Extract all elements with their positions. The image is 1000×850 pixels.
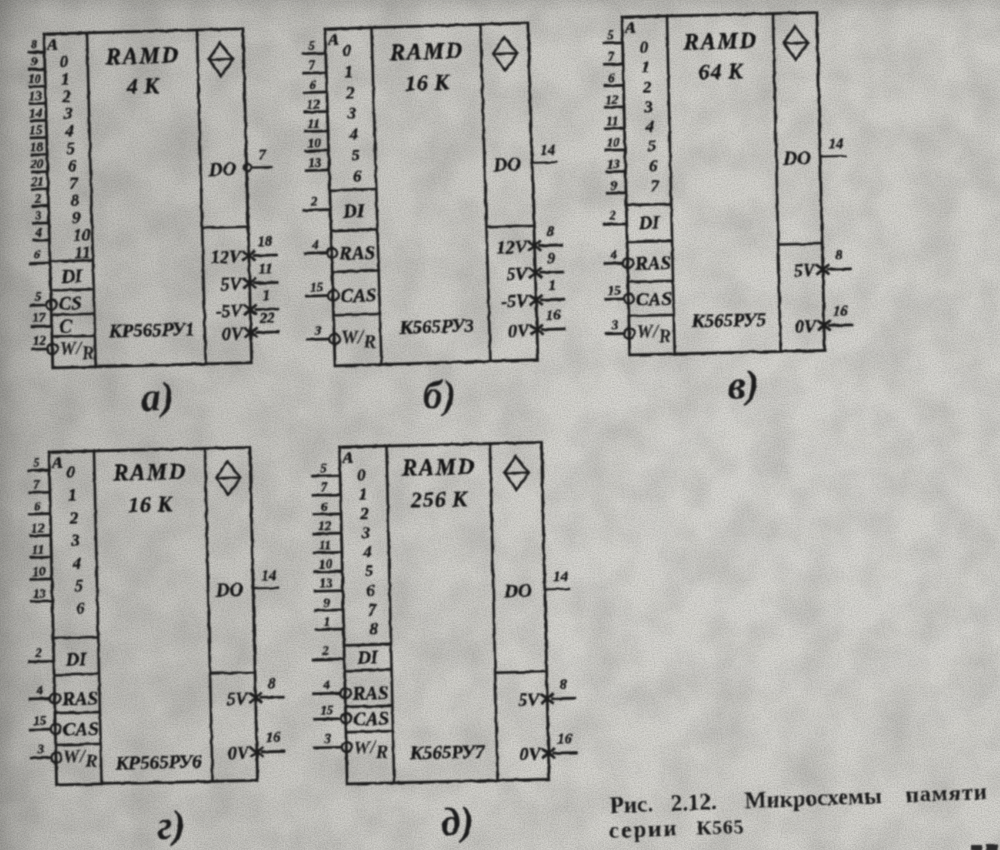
svg-text:10: 10 bbox=[606, 134, 620, 149]
svg-text:г): г) bbox=[156, 801, 186, 847]
svg-text:2: 2 bbox=[321, 643, 329, 658]
svg-text:DI: DI bbox=[60, 266, 83, 288]
svg-text:12V: 12V bbox=[211, 246, 244, 267]
svg-text:10: 10 bbox=[32, 564, 46, 579]
svg-text:9: 9 bbox=[610, 178, 617, 193]
svg-text:13: 13 bbox=[33, 585, 47, 600]
svg-text:5: 5 bbox=[351, 146, 361, 165]
svg-text:К565РУ3: К565РУ3 bbox=[398, 316, 474, 339]
svg-text:0V: 0V bbox=[228, 743, 251, 764]
svg-text:CAS: CAS bbox=[63, 719, 99, 741]
svg-text:12: 12 bbox=[318, 518, 332, 533]
svg-text:6: 6 bbox=[68, 156, 77, 175]
svg-text:RAMD: RAMD bbox=[401, 454, 476, 481]
svg-text:15: 15 bbox=[608, 282, 622, 297]
svg-text:Микросхемы: Микросхемы bbox=[744, 783, 882, 813]
svg-text:0: 0 bbox=[342, 41, 352, 60]
svg-text:4: 4 bbox=[72, 554, 82, 573]
svg-text:14: 14 bbox=[261, 568, 277, 584]
svg-text:6: 6 bbox=[309, 77, 316, 92]
svg-text:4: 4 bbox=[311, 237, 319, 252]
svg-text:12V: 12V bbox=[496, 236, 529, 257]
svg-text:1: 1 bbox=[68, 486, 77, 505]
svg-text:9: 9 bbox=[72, 208, 81, 227]
svg-text:0V: 0V bbox=[519, 744, 542, 765]
svg-text:2: 2 bbox=[33, 191, 41, 206]
svg-text:1: 1 bbox=[548, 278, 556, 294]
svg-text:КР565РУ1: КР565РУ1 bbox=[108, 319, 196, 342]
svg-text:5: 5 bbox=[647, 136, 656, 155]
svg-text:6: 6 bbox=[34, 247, 41, 262]
svg-text:DO: DO bbox=[215, 580, 244, 602]
svg-text:5: 5 bbox=[74, 576, 83, 595]
svg-text:3: 3 bbox=[70, 531, 80, 550]
svg-text:4: 4 bbox=[64, 121, 74, 140]
svg-text:64 К: 64 К bbox=[698, 58, 744, 84]
svg-text:5V: 5V bbox=[518, 689, 541, 710]
svg-text:DI: DI bbox=[637, 212, 660, 234]
svg-text:13: 13 bbox=[308, 155, 322, 170]
svg-text:CAS: CAS bbox=[353, 709, 389, 731]
svg-text:4 К: 4 К bbox=[125, 73, 160, 99]
svg-text:256 К: 256 К bbox=[410, 486, 469, 512]
svg-text:4: 4 bbox=[322, 677, 330, 692]
svg-text:д): д) bbox=[440, 798, 475, 845]
svg-text:DO: DO bbox=[492, 154, 521, 176]
svg-text:17: 17 bbox=[32, 310, 46, 325]
svg-text:11: 11 bbox=[606, 113, 619, 128]
svg-text:К565: К565 bbox=[696, 816, 744, 840]
svg-text:DI: DI bbox=[356, 647, 379, 669]
svg-text:К565РУ5: К565РУ5 bbox=[691, 310, 767, 333]
svg-text:A: A bbox=[51, 455, 63, 472]
svg-text:8: 8 bbox=[835, 248, 843, 264]
svg-text:8: 8 bbox=[30, 37, 37, 52]
svg-text:DI: DI bbox=[64, 649, 87, 671]
svg-text:2: 2 bbox=[34, 645, 42, 660]
svg-text:8: 8 bbox=[70, 191, 79, 210]
svg-text:памяти: памяти bbox=[905, 779, 988, 807]
svg-text:18: 18 bbox=[30, 139, 44, 154]
svg-text:1: 1 bbox=[61, 69, 70, 88]
svg-text:RAMD: RAMD bbox=[104, 42, 179, 69]
svg-text:16: 16 bbox=[557, 731, 573, 747]
svg-text:12: 12 bbox=[31, 520, 45, 535]
svg-text:15: 15 bbox=[33, 713, 47, 728]
svg-text:18: 18 bbox=[257, 234, 273, 250]
svg-text:21: 21 bbox=[30, 173, 44, 188]
svg-text:4: 4 bbox=[34, 225, 42, 240]
svg-text:RAS: RAS bbox=[351, 683, 388, 705]
svg-text:а): а) bbox=[139, 373, 175, 420]
svg-text:4: 4 bbox=[609, 247, 617, 262]
svg-text:2: 2 bbox=[61, 87, 71, 106]
svg-text:1: 1 bbox=[641, 58, 650, 77]
svg-text:0: 0 bbox=[357, 465, 366, 484]
svg-text:1: 1 bbox=[344, 62, 353, 81]
svg-text:6: 6 bbox=[76, 599, 85, 618]
svg-text:в): в) bbox=[727, 361, 761, 408]
svg-text:5V: 5V bbox=[220, 274, 244, 295]
svg-text:A: A bbox=[342, 450, 354, 467]
svg-text:2: 2 bbox=[608, 208, 616, 223]
svg-text:4: 4 bbox=[35, 682, 43, 697]
svg-text:14: 14 bbox=[540, 142, 556, 158]
svg-text:RAS: RAS bbox=[634, 253, 671, 275]
svg-text:10: 10 bbox=[308, 135, 322, 150]
svg-text:11: 11 bbox=[319, 537, 332, 552]
svg-text:8: 8 bbox=[369, 619, 378, 638]
svg-text:3: 3 bbox=[611, 317, 619, 332]
svg-text:8: 8 bbox=[547, 224, 555, 240]
svg-text:C: C bbox=[59, 316, 73, 337]
svg-text:5: 5 bbox=[35, 289, 42, 304]
svg-text:11: 11 bbox=[258, 261, 273, 277]
svg-text:КР565РУ6: КР565РУ6 bbox=[114, 752, 202, 775]
svg-text:1: 1 bbox=[358, 485, 367, 504]
svg-text:16: 16 bbox=[545, 308, 561, 324]
svg-text:13: 13 bbox=[319, 575, 333, 590]
svg-text:3: 3 bbox=[323, 731, 331, 746]
svg-text:7: 7 bbox=[33, 477, 40, 492]
svg-text:7: 7 bbox=[320, 479, 327, 494]
svg-text:5V: 5V bbox=[226, 689, 249, 710]
svg-text:20: 20 bbox=[29, 156, 44, 171]
svg-text:DO: DO bbox=[782, 148, 811, 170]
svg-text:6: 6 bbox=[353, 166, 363, 185]
svg-text:2: 2 bbox=[642, 77, 652, 96]
svg-text:0V: 0V bbox=[795, 316, 818, 337]
svg-text:15: 15 bbox=[320, 702, 334, 717]
svg-text:22: 22 bbox=[258, 311, 275, 327]
svg-text:CS: CS bbox=[58, 293, 82, 315]
svg-text:2: 2 bbox=[359, 504, 369, 523]
svg-text:7: 7 bbox=[607, 49, 614, 64]
svg-text:2: 2 bbox=[310, 193, 318, 208]
svg-text:6: 6 bbox=[321, 499, 328, 514]
svg-text:Рис.: Рис. bbox=[609, 791, 653, 818]
svg-text:DO: DO bbox=[503, 581, 532, 603]
svg-text:2: 2 bbox=[68, 508, 78, 527]
svg-text:11: 11 bbox=[32, 542, 45, 557]
svg-text:CAS: CAS bbox=[340, 285, 377, 307]
svg-text:8: 8 bbox=[268, 676, 276, 692]
svg-text:4: 4 bbox=[348, 125, 358, 144]
svg-text:2.12.: 2.12. bbox=[670, 789, 717, 816]
svg-text:1: 1 bbox=[262, 288, 270, 304]
svg-text:12: 12 bbox=[605, 91, 619, 106]
svg-text:7: 7 bbox=[258, 147, 266, 163]
svg-text:0: 0 bbox=[639, 38, 648, 57]
svg-text:16: 16 bbox=[833, 303, 849, 319]
svg-text:0: 0 bbox=[59, 52, 68, 71]
svg-text:6: 6 bbox=[34, 498, 41, 513]
svg-text:3: 3 bbox=[643, 97, 653, 116]
svg-text:RAS: RAS bbox=[338, 243, 376, 265]
svg-text:5: 5 bbox=[320, 460, 327, 475]
svg-text:5V: 5V bbox=[506, 264, 530, 285]
svg-text:5: 5 bbox=[607, 27, 614, 42]
svg-text:3: 3 bbox=[347, 104, 358, 123]
svg-text:-5V: -5V bbox=[501, 291, 531, 312]
svg-text:15: 15 bbox=[310, 279, 324, 294]
svg-text:5V: 5V bbox=[794, 260, 817, 281]
svg-text:3: 3 bbox=[361, 523, 371, 542]
svg-text:-5V: -5V bbox=[215, 300, 245, 321]
svg-text:RAMD: RAMD bbox=[388, 38, 463, 65]
svg-text:10: 10 bbox=[28, 71, 42, 86]
svg-text:12: 12 bbox=[33, 333, 47, 348]
svg-text:DO: DO bbox=[208, 159, 237, 181]
svg-text:3: 3 bbox=[36, 741, 44, 756]
svg-text:RAMD: RAMD bbox=[682, 28, 757, 55]
svg-text:9: 9 bbox=[323, 595, 330, 610]
svg-text:RAMD: RAMD bbox=[112, 459, 187, 486]
svg-text:5: 5 bbox=[33, 455, 40, 470]
svg-text:0: 0 bbox=[66, 463, 75, 482]
svg-text:CAS: CAS bbox=[636, 289, 672, 311]
svg-text:9: 9 bbox=[547, 251, 555, 267]
svg-text:16 К: 16 К bbox=[405, 69, 451, 95]
svg-text:14: 14 bbox=[828, 136, 844, 152]
svg-text:8: 8 bbox=[560, 677, 568, 693]
svg-text:0V: 0V bbox=[508, 320, 532, 341]
svg-text:2: 2 bbox=[345, 83, 356, 102]
svg-text:5: 5 bbox=[365, 561, 374, 580]
svg-text:5: 5 bbox=[66, 139, 75, 158]
svg-text:11: 11 bbox=[307, 116, 320, 131]
svg-text:14: 14 bbox=[29, 105, 43, 120]
svg-text:3: 3 bbox=[34, 208, 42, 223]
svg-text:6: 6 bbox=[366, 581, 375, 600]
svg-text:16 К: 16 К bbox=[128, 491, 174, 517]
svg-text:RAS: RAS bbox=[61, 688, 98, 710]
svg-text:A: A bbox=[46, 37, 58, 54]
svg-text:0V: 0V bbox=[222, 323, 246, 344]
svg-text:15: 15 bbox=[29, 122, 43, 137]
svg-text:6: 6 bbox=[608, 70, 615, 85]
svg-text:К565РУ7: К565РУ7 bbox=[409, 742, 486, 765]
svg-text:13: 13 bbox=[28, 88, 42, 103]
svg-text:7: 7 bbox=[309, 57, 316, 72]
svg-text:6: 6 bbox=[649, 156, 658, 175]
svg-text:4: 4 bbox=[362, 542, 372, 561]
svg-text:серии: серии bbox=[608, 816, 679, 844]
svg-text:10: 10 bbox=[319, 556, 333, 571]
svg-text:A: A bbox=[624, 20, 636, 37]
svg-text:4: 4 bbox=[645, 117, 655, 136]
svg-text:9: 9 bbox=[31, 54, 38, 69]
svg-text:1: 1 bbox=[324, 614, 331, 629]
svg-text:5: 5 bbox=[308, 38, 315, 53]
svg-text:б): б) bbox=[421, 371, 457, 418]
svg-text:DI: DI bbox=[342, 201, 365, 223]
svg-text:12: 12 bbox=[306, 96, 320, 111]
svg-text:14: 14 bbox=[553, 569, 569, 585]
svg-text:3: 3 bbox=[63, 104, 73, 123]
svg-text:A: A bbox=[327, 32, 339, 49]
svg-text:13: 13 bbox=[607, 156, 621, 171]
svg-text:3: 3 bbox=[313, 323, 321, 338]
svg-text:16: 16 bbox=[265, 730, 281, 746]
